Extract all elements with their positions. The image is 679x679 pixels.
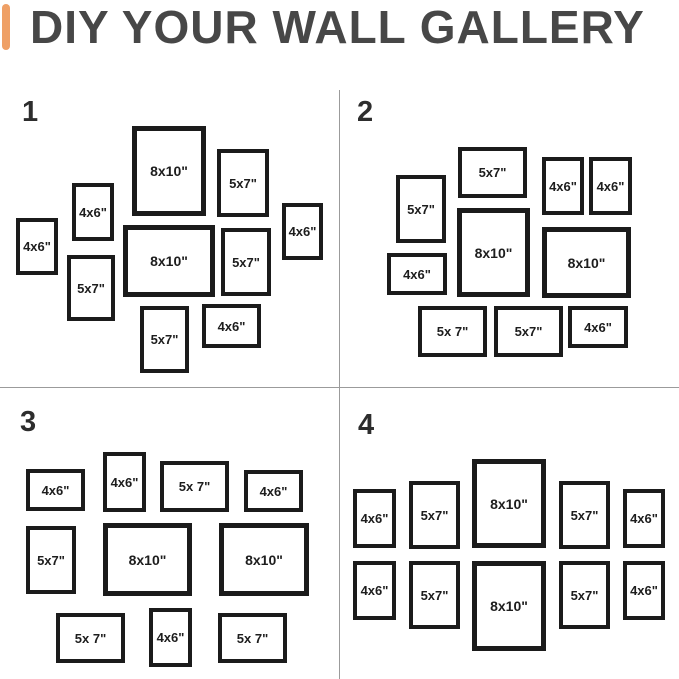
- frame-4x6: 4x6": [623, 489, 665, 548]
- layout-4: 44x6"5x7"8x10"5x7"4x6"4x6"5x7"8x10"5x7"4…: [0, 0, 679, 679]
- frame-size-label: 4x6": [361, 511, 389, 526]
- frame-size-label: 5x7": [571, 588, 599, 603]
- frame-8x10: 8x10": [472, 561, 546, 651]
- frame-size-label: 5x7": [571, 508, 599, 523]
- frame-8x10: 8x10": [472, 459, 546, 548]
- frame-4x6: 4x6": [623, 561, 665, 620]
- frame-5x7: 5x7": [409, 561, 460, 629]
- frame-4x6: 4x6": [353, 489, 396, 548]
- frame-size-label: 4x6": [361, 583, 389, 598]
- frame-5x7: 5x7": [559, 561, 610, 629]
- frame-4x6: 4x6": [353, 561, 396, 620]
- frame-size-label: 5x7": [421, 508, 449, 523]
- frame-size-label: 4x6": [630, 583, 658, 598]
- frame-5x7: 5x7": [409, 481, 460, 549]
- frame-size-label: 5x7": [421, 588, 449, 603]
- frame-size-label: 4x6": [630, 511, 658, 526]
- frame-5x7: 5x7": [559, 481, 610, 549]
- frame-size-label: 8x10": [490, 598, 528, 614]
- layout-number-4: 4: [358, 411, 374, 440]
- frame-size-label: 8x10": [490, 496, 528, 512]
- wall-gallery-infographic: DIY YOUR WALL GALLERY 18x10"5x7"4x6"4x6"…: [0, 0, 679, 679]
